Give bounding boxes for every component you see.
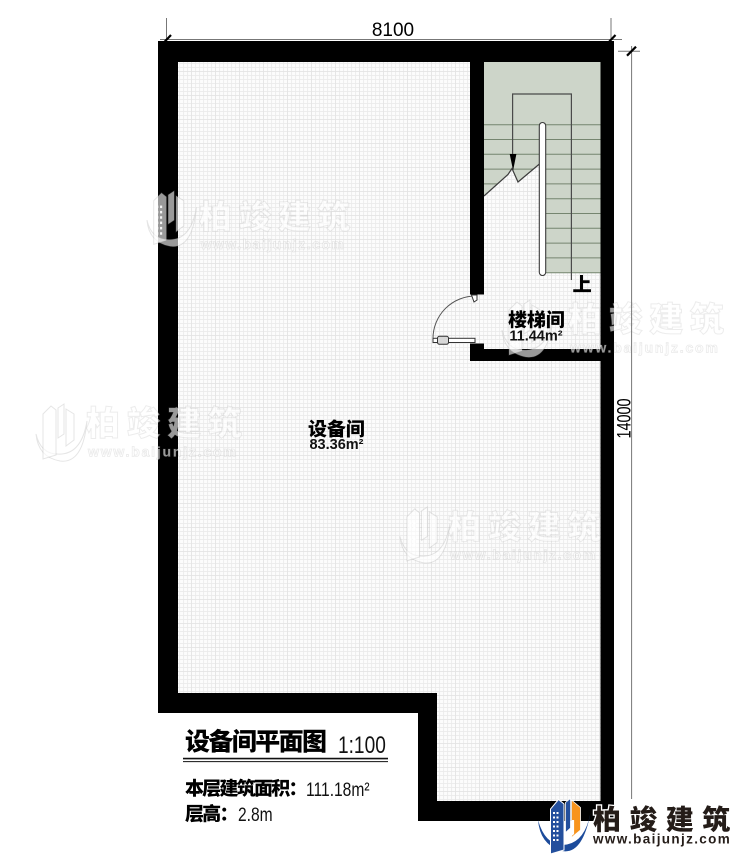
svg-text:www.baijunjz.com: www.baijunjz.com (569, 340, 720, 356)
svg-text:www.baijunjz.com: www.baijunjz.com (449, 548, 597, 563)
svg-text:11.44m²: 11.44m² (509, 329, 562, 345)
svg-text:83.36m²: 83.36m² (309, 437, 363, 453)
svg-text:www.baijunjz.com: www.baijunjz.com (87, 444, 238, 460)
svg-text:8100: 8100 (372, 20, 414, 41)
svg-text:1:100: 1:100 (338, 731, 386, 759)
svg-text:www.baijunjz.com: www.baijunjz.com (200, 237, 346, 252)
svg-text:2.8m: 2.8m (238, 803, 273, 825)
svg-text:www.baijunjz.com: www.baijunjz.com (592, 832, 731, 847)
svg-text:111.18m²: 111.18m² (306, 778, 370, 800)
svg-text:14000: 14000 (614, 398, 635, 438)
